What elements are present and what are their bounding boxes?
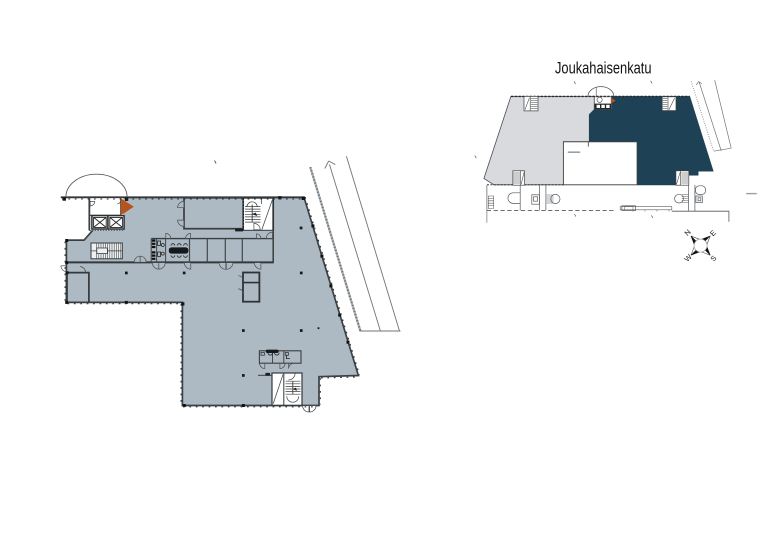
svg-text:Joukahaisenkatu: Joukahaisenkatu xyxy=(555,60,652,78)
